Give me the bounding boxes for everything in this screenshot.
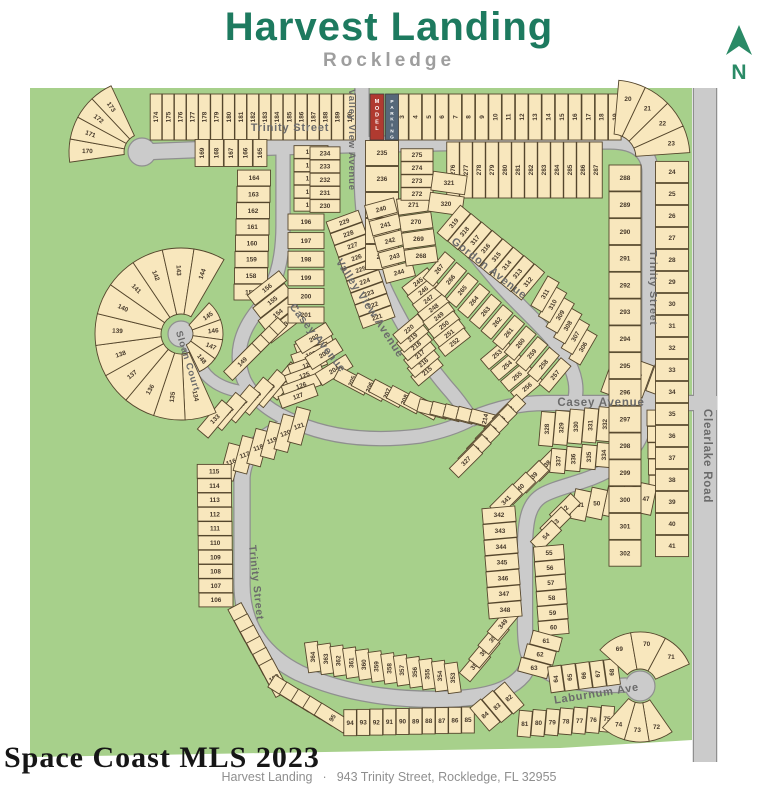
lot-number: 110 xyxy=(210,540,221,547)
lot-number: 188 xyxy=(323,111,330,122)
lot-number: 65 xyxy=(567,673,574,681)
lot-number: 66 xyxy=(581,672,588,680)
lot-number: 32 xyxy=(668,345,676,352)
lot-number: 72 xyxy=(653,724,661,731)
lot-number: 289 xyxy=(620,202,631,209)
lot-number: 3 xyxy=(399,115,406,119)
lot-number: 20 xyxy=(624,96,632,103)
lot-number: 93 xyxy=(360,720,368,727)
lot-number: 297 xyxy=(620,416,631,423)
lot-number: 71 xyxy=(668,654,676,661)
lot-number: 334 xyxy=(601,449,608,460)
lot-number: 185 xyxy=(286,111,293,122)
lot-number: 343 xyxy=(495,528,506,535)
lot-number: 273 xyxy=(412,178,423,185)
lot-number: 290 xyxy=(620,229,631,236)
lot-number: 291 xyxy=(620,256,631,263)
lot-number: 158 xyxy=(246,273,257,280)
street-label: Casey Avenue xyxy=(557,397,644,409)
lot-number: 146 xyxy=(208,327,220,335)
lot-number: 274 xyxy=(412,165,423,172)
lot-number: 14 xyxy=(546,113,553,121)
lot-number: 234 xyxy=(320,150,331,157)
lot-number: 300 xyxy=(620,497,631,504)
lot-number: 5 xyxy=(426,115,433,119)
lot-number: 56 xyxy=(546,565,554,572)
lot-number: 177 xyxy=(190,111,197,122)
lot-number: 284 xyxy=(554,164,561,175)
footer-address: 943 Trinity Street, Rockledge, FL 32955 xyxy=(337,770,557,784)
model-lot-label: O xyxy=(375,106,380,112)
lot-number: 162 xyxy=(248,208,259,215)
lot-number: 64 xyxy=(553,675,560,683)
lot-number: 288 xyxy=(620,175,631,182)
lot-number: 111 xyxy=(210,526,220,533)
lot-number: 165 xyxy=(257,147,264,158)
lot-number: 77 xyxy=(576,718,584,725)
compass: N xyxy=(718,24,760,85)
lot-number: 277 xyxy=(463,164,470,175)
lot-number: 88 xyxy=(425,718,433,725)
lot-number: 179 xyxy=(214,111,221,122)
lot-number: 278 xyxy=(476,164,483,175)
lot-number: 189 xyxy=(335,111,342,122)
lot-number: 183 xyxy=(262,111,269,122)
parking-lot-label: G xyxy=(390,134,394,140)
lot-number: 268 xyxy=(416,253,427,260)
lot-number: 106 xyxy=(211,597,222,604)
street-label: Clearlake Road xyxy=(701,409,713,503)
lot-number: 28 xyxy=(668,257,676,264)
lot-number: 320 xyxy=(441,201,452,208)
lot-number: 231 xyxy=(320,190,331,197)
site-map: 1741751761771781791801811821831841851861… xyxy=(0,0,778,800)
lot-number: 90 xyxy=(399,719,407,726)
lot-number: 57 xyxy=(547,580,555,587)
lot-number: 348 xyxy=(500,607,511,614)
lot-number: 37 xyxy=(668,455,676,462)
lot-number: 285 xyxy=(567,164,574,175)
lot-number: 336 xyxy=(571,453,578,464)
lot-number: 168 xyxy=(214,147,221,158)
lot-number: 170 xyxy=(82,148,93,155)
lot-number: 76 xyxy=(590,717,598,724)
lot-number: 29 xyxy=(668,279,676,286)
lot-number: 33 xyxy=(668,367,676,374)
lot-number: 282 xyxy=(528,164,535,175)
lot-number: 186 xyxy=(298,111,305,122)
lot-number: 79 xyxy=(549,719,557,726)
lot-number: 70 xyxy=(643,641,651,648)
lot-number: 354 xyxy=(437,670,444,681)
lot-number: 15 xyxy=(559,113,566,121)
lot-number: 13 xyxy=(532,113,539,121)
lot-number: 8 xyxy=(466,115,473,119)
lot-number: 169 xyxy=(199,147,206,158)
lot-number: 12 xyxy=(519,113,526,121)
lot-number: 17 xyxy=(585,113,592,121)
lot-number: 115 xyxy=(209,469,220,476)
lot-number: 11 xyxy=(506,113,513,120)
lot-number: 362 xyxy=(336,655,343,666)
lot-number: 22 xyxy=(659,121,667,128)
lot-number: 329 xyxy=(559,422,566,433)
lot-number: 363 xyxy=(323,653,330,664)
lot-number: 25 xyxy=(668,191,676,198)
lot-number: 182 xyxy=(250,111,257,122)
lot-number: 271 xyxy=(408,202,419,209)
lot-number: 302 xyxy=(620,550,631,557)
lot-number: 345 xyxy=(497,560,508,567)
lot-number: 167 xyxy=(228,147,235,158)
lot-number: 292 xyxy=(620,282,631,289)
lot-number: 94 xyxy=(347,720,355,727)
lot-number: 166 xyxy=(243,147,250,158)
lot-number: 180 xyxy=(226,111,233,122)
lot-number: 16 xyxy=(572,113,579,121)
map-header: Harvest Landing Rockledge xyxy=(0,6,778,72)
lot-number: 60 xyxy=(550,625,558,632)
lot-number: 328 xyxy=(544,423,551,434)
lot-number: 21 xyxy=(644,105,652,112)
lot-number: 200 xyxy=(301,294,312,301)
lot-number: 295 xyxy=(620,363,631,370)
lot-number: 108 xyxy=(210,569,221,576)
lot-number: 10 xyxy=(492,113,499,121)
parking-lot-label: R xyxy=(390,111,394,117)
lot-number: 34 xyxy=(668,389,676,396)
lot-number: 161 xyxy=(247,224,258,231)
lot-number: 41 xyxy=(668,543,676,550)
lot-number: 69 xyxy=(616,646,624,653)
lot-number: 62 xyxy=(536,652,544,659)
lot-number: 55 xyxy=(545,550,553,557)
lot-number: 24 xyxy=(668,169,676,176)
lot-number: 7 xyxy=(452,115,459,119)
lot-number: 6 xyxy=(439,115,446,119)
lot-number: 360 xyxy=(361,659,368,670)
lot-number: 23 xyxy=(668,140,676,147)
lot-number: 91 xyxy=(386,719,394,726)
lot-number: 26 xyxy=(668,213,676,220)
street-label: Trinity Street xyxy=(251,122,329,134)
lot-number: 73 xyxy=(634,727,642,734)
lot-number: 63 xyxy=(530,665,538,672)
lot-number: 283 xyxy=(541,164,548,175)
parking-lot-label: A xyxy=(390,105,394,111)
lot-number: 230 xyxy=(320,203,331,210)
lot-number: 74 xyxy=(615,721,623,728)
lot-number: 38 xyxy=(668,477,676,484)
lot-number: 50 xyxy=(593,501,601,508)
lot-number: 347 xyxy=(499,591,510,598)
lot-number: 293 xyxy=(620,309,631,316)
lot-number: 296 xyxy=(620,390,631,397)
lot-number: 280 xyxy=(502,164,509,175)
lot-number: 85 xyxy=(464,717,472,724)
lot-number: 36 xyxy=(668,433,676,440)
lot-number: 86 xyxy=(451,718,459,725)
lot-number: 275 xyxy=(412,152,423,159)
lot-number: 269 xyxy=(413,236,424,243)
lot-number: 281 xyxy=(515,164,522,175)
model-lot-label: M xyxy=(375,99,380,105)
lot-number: 31 xyxy=(668,323,676,330)
lot-number: 163 xyxy=(248,192,259,199)
lot-number: 112 xyxy=(210,511,221,518)
lot-number: 232 xyxy=(320,177,331,184)
lot-number: 68 xyxy=(609,668,616,676)
page-subtitle: Rockledge xyxy=(0,50,778,72)
lot-number: 181 xyxy=(238,111,245,122)
lot-number: 139 xyxy=(112,328,123,336)
lot-number: 321 xyxy=(444,180,455,187)
lot-number: 196 xyxy=(301,219,312,226)
lot-number: 175 xyxy=(165,111,172,122)
lot-number: 114 xyxy=(209,483,220,490)
compass-label: N xyxy=(718,61,760,85)
lot-number: 294 xyxy=(620,336,631,343)
lot-number: 197 xyxy=(301,238,312,245)
lot-number: 235 xyxy=(377,150,388,157)
footer-project: Harvest Landing xyxy=(221,770,312,784)
lot-number: 364 xyxy=(310,651,317,662)
lot-number: 35 xyxy=(668,411,676,418)
lot-number: 184 xyxy=(274,111,281,122)
lot-number: 187 xyxy=(311,111,318,122)
lot-number: 40 xyxy=(668,521,676,528)
lot-number: 160 xyxy=(247,240,258,247)
parking-lot-label: N xyxy=(390,129,394,135)
lot-number: 178 xyxy=(202,111,209,122)
north-arrow-icon xyxy=(724,24,754,58)
lot-number: 39 xyxy=(668,499,676,506)
lot-number: 80 xyxy=(535,720,543,727)
lot-number: 346 xyxy=(498,575,509,582)
lot-number: 330 xyxy=(573,421,580,432)
lot-number: 30 xyxy=(668,301,676,308)
footer: Harvest Landing·943 Trinity Street, Rock… xyxy=(0,770,778,784)
lot-number: 176 xyxy=(177,111,184,122)
footer-separator: · xyxy=(323,770,327,784)
lot-number: 78 xyxy=(562,719,570,726)
lot-number: 89 xyxy=(412,718,420,725)
page-title: Harvest Landing xyxy=(0,6,778,48)
lot-number: 272 xyxy=(412,191,423,198)
lot-number: 4 xyxy=(413,115,420,119)
lot-number: 358 xyxy=(386,663,393,674)
lot-number: 87 xyxy=(438,718,446,725)
lot-number: 361 xyxy=(348,657,355,668)
lot-number: 298 xyxy=(620,443,631,450)
lot-number: 233 xyxy=(320,164,331,171)
lot-number: 107 xyxy=(210,583,221,590)
lot-number: 359 xyxy=(374,661,381,672)
lot-number: 18 xyxy=(599,113,606,121)
lot-number: 61 xyxy=(542,638,550,645)
lot-number: 27 xyxy=(668,235,676,242)
lot-number: 47 xyxy=(642,496,650,503)
lot-number: 59 xyxy=(549,610,557,617)
lot-number: 67 xyxy=(595,670,602,678)
lot-number: 286 xyxy=(580,164,587,175)
lot-number: 279 xyxy=(489,164,496,175)
lot-number: 81 xyxy=(521,721,529,728)
lot-number: 344 xyxy=(496,544,507,551)
lot-number: 113 xyxy=(209,497,220,504)
lot-number: 109 xyxy=(210,554,221,561)
model-lot-label: D xyxy=(375,113,379,119)
street-label: Valley View Avenue xyxy=(346,89,357,191)
lot-number: 301 xyxy=(620,524,631,531)
lot-number: 164 xyxy=(249,175,260,182)
model-lot-label: L xyxy=(375,126,379,132)
lot-number: 270 xyxy=(411,219,422,226)
lot-number: 287 xyxy=(593,164,600,175)
lot-number: 299 xyxy=(620,470,631,477)
lot-number: 355 xyxy=(425,668,432,679)
lot-number: 143 xyxy=(175,265,182,276)
lot-number: 236 xyxy=(377,176,388,183)
model-lot-label: E xyxy=(375,119,379,125)
lot-number: 353 xyxy=(450,672,457,683)
lot-number: 198 xyxy=(301,256,312,263)
lot-number: 9 xyxy=(479,115,486,119)
lot-number: 159 xyxy=(246,257,257,264)
lot-number: 92 xyxy=(373,719,381,726)
lot-number: 335 xyxy=(586,451,593,462)
lot-number: 357 xyxy=(399,665,406,676)
lot-number: 342 xyxy=(494,512,505,519)
parking-lot-label: K xyxy=(390,117,394,123)
lot-number: 331 xyxy=(587,420,594,431)
lot-number: 356 xyxy=(412,666,419,677)
lot-number: 332 xyxy=(602,418,609,429)
lot-number: 199 xyxy=(301,275,312,282)
street-label: Trinity Street xyxy=(647,250,659,325)
lot-number: 58 xyxy=(548,595,556,602)
lot-number: 337 xyxy=(555,455,562,466)
site-map-svg: 1741751761771781791801811821831841851861… xyxy=(0,0,778,800)
plat-map-page: { "header": { "title": "Harvest Landing"… xyxy=(0,0,778,800)
lot-number: 174 xyxy=(153,111,160,122)
